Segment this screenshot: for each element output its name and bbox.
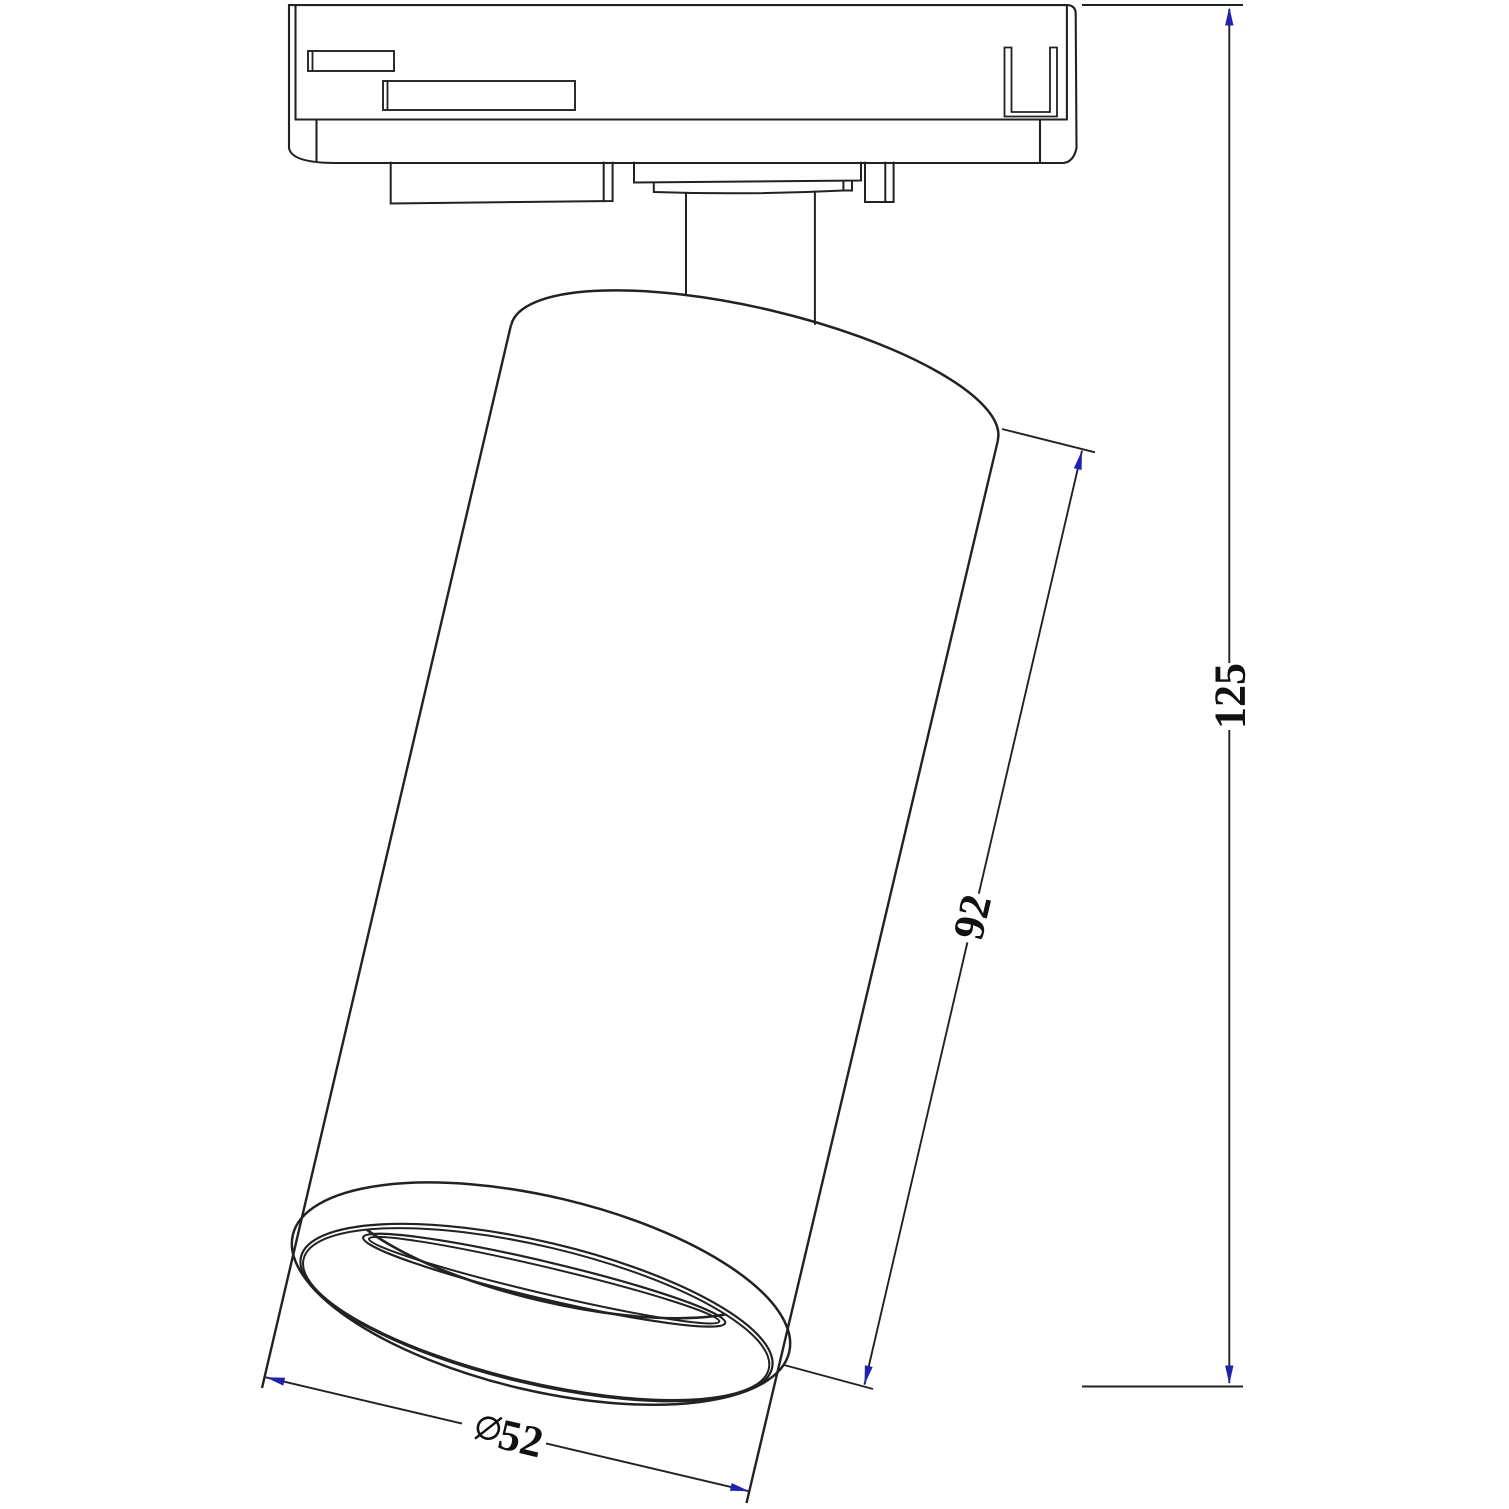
svg-text:125: 125 bbox=[1205, 663, 1254, 729]
